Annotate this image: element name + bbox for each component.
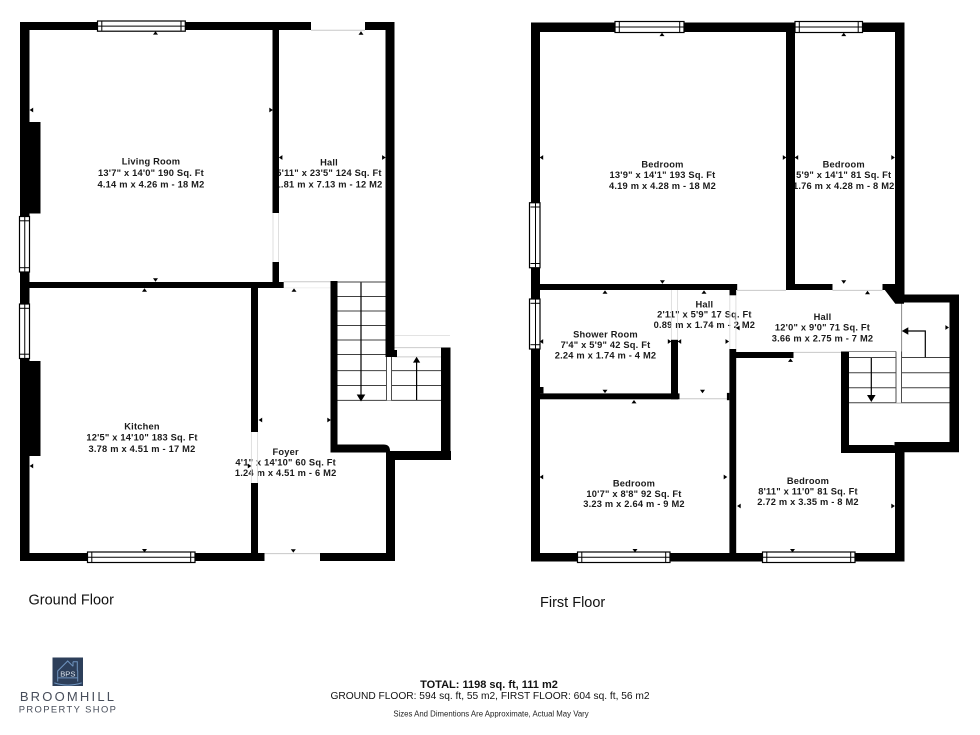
svg-text:3.66 m x 2.75 m - 7 M2: 3.66 m x 2.75 m - 7 M2: [772, 333, 874, 343]
svg-text:Bedroom: Bedroom: [613, 478, 655, 488]
svg-text:4.14 m x 4.26 m - 18 M2: 4.14 m x 4.26 m - 18 M2: [98, 179, 205, 189]
svg-text:3.23 m x 2.64 m - 9 M2: 3.23 m x 2.64 m - 9 M2: [583, 499, 685, 509]
svg-text:2.24 m x 1.74 m - 4 M2: 2.24 m x 1.74 m - 4 M2: [555, 350, 657, 360]
svg-text:4.19 m x 4.28 m - 18 M2: 4.19 m x 4.28 m - 18 M2: [609, 181, 716, 191]
svg-text:0.89 m x 1.74 m - 2 M2: 0.89 m x 1.74 m - 2 M2: [654, 320, 756, 330]
svg-text:Hall: Hall: [320, 157, 338, 167]
svg-text:5'9" x 14'1" 81 Sq. Ft: 5'9" x 14'1" 81 Sq. Ft: [796, 170, 891, 180]
svg-text:5'11" x 23'5" 124 Sq. Ft: 5'11" x 23'5" 124 Sq. Ft: [276, 168, 381, 178]
svg-text:13'9" x 14'1" 193 Sq. Ft: 13'9" x 14'1" 193 Sq. Ft: [610, 170, 716, 180]
svg-text:BPS: BPS: [60, 669, 75, 678]
svg-text:Kitchen: Kitchen: [124, 422, 160, 432]
svg-text:GROUND FLOOR: 594 sq. ft, 55 m: GROUND FLOOR: 594 sq. ft, 55 m2, FIRST F…: [330, 691, 649, 702]
svg-text:Hall: Hall: [814, 312, 832, 322]
svg-text:10'7" x 8'8" 92 Sq. Ft: 10'7" x 8'8" 92 Sq. Ft: [586, 489, 681, 499]
svg-text:Bedroom: Bedroom: [787, 476, 829, 486]
svg-text:3.78 m x 4.51 m - 17 M2: 3.78 m x 4.51 m - 17 M2: [89, 444, 196, 454]
svg-text:1.24 m x 4.51 m - 6 M2: 1.24 m x 4.51 m - 6 M2: [235, 468, 337, 478]
svg-text:Foyer: Foyer: [273, 447, 299, 457]
svg-text:Bedroom: Bedroom: [641, 159, 683, 169]
svg-text:13'7" x 14'0" 190 Sq. Ft: 13'7" x 14'0" 190 Sq. Ft: [98, 168, 204, 178]
svg-text:First Floor: First Floor: [540, 595, 605, 611]
svg-text:8'11" x 11'0" 81 Sq. Ft: 8'11" x 11'0" 81 Sq. Ft: [758, 487, 858, 497]
svg-text:Hall: Hall: [695, 299, 713, 309]
svg-text:TOTAL: 1198 sq. ft, 111 m2: TOTAL: 1198 sq. ft, 111 m2: [420, 679, 558, 691]
svg-text:12'0" x 9'0" 71 Sq. Ft: 12'0" x 9'0" 71 Sq. Ft: [775, 323, 870, 333]
svg-text:Living Room: Living Room: [122, 157, 181, 167]
svg-text:BROOMHILL: BROOMHILL: [20, 689, 116, 704]
svg-text:12'5" x 14'10" 183 Sq. Ft: 12'5" x 14'10" 183 Sq. Ft: [86, 433, 197, 443]
svg-text:Sizes And Dimentions Are Appro: Sizes And Dimentions Are Approximate, Ac…: [393, 710, 588, 719]
svg-text:7'4" x 5'9" 42 Sq. Ft: 7'4" x 5'9" 42 Sq. Ft: [561, 340, 651, 350]
svg-text:1.76 m x 4.28 m - 8 M2: 1.76 m x 4.28 m - 8 M2: [793, 181, 895, 191]
svg-text:PROPERTY SHOP: PROPERTY SHOP: [19, 704, 118, 715]
svg-text:1.81 m x 7.13 m - 12 M2: 1.81 m x 7.13 m - 12 M2: [276, 180, 383, 190]
svg-text:Shower Room: Shower Room: [573, 329, 638, 339]
svg-text:Bedroom: Bedroom: [823, 159, 865, 169]
svg-text:Ground Floor: Ground Floor: [29, 593, 115, 609]
svg-text:2.72 m x 3.35 m - 8 M2: 2.72 m x 3.35 m - 8 M2: [757, 497, 859, 507]
